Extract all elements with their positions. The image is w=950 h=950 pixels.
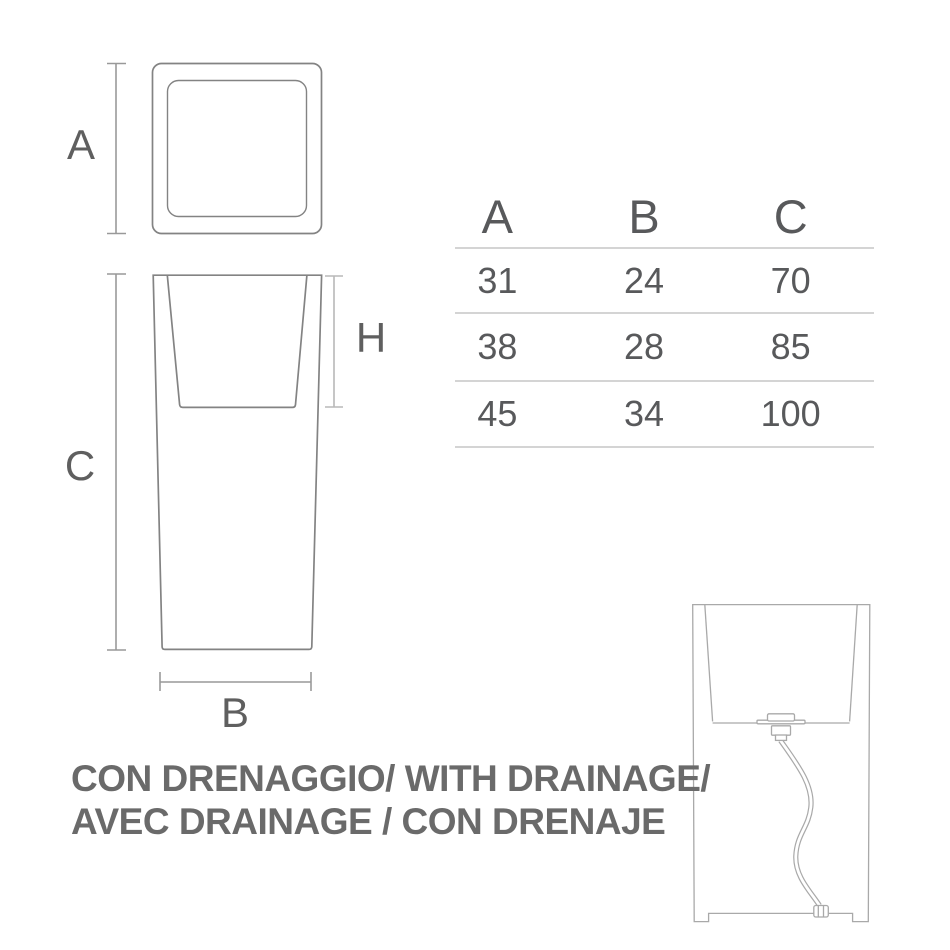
size-table: A B C 31 24 70 38 28 85 45 34 100 xyxy=(424,184,864,447)
dimension-label-c: C xyxy=(65,442,95,489)
top-view-drawing xyxy=(153,64,322,234)
drain-fitting-cap xyxy=(768,714,795,721)
drainage-caption: CON DRENAGGIO/ WITH DRAINAGE/ AVEC DRAIN… xyxy=(71,757,710,843)
drain-plug xyxy=(814,906,829,918)
dimension-line-h xyxy=(325,276,343,407)
size-table-cell: 28 xyxy=(571,326,718,368)
side-view-outline xyxy=(153,275,321,649)
table-rule-line xyxy=(455,380,874,382)
dimension-sheet: A C H B xyxy=(0,0,950,950)
size-table-row: 45 34 100 xyxy=(424,381,864,447)
drain-fitting-nut xyxy=(772,726,791,735)
size-table-cell: 34 xyxy=(571,393,718,435)
size-table-header-a: A xyxy=(424,189,571,244)
size-table-cell: 38 xyxy=(424,326,571,368)
dimension-label-a: A xyxy=(67,121,95,168)
size-table-header-c: C xyxy=(717,189,864,244)
size-table-cell: 45 xyxy=(424,393,571,435)
size-table-cell: 70 xyxy=(717,260,864,302)
dimension-line-a xyxy=(107,64,126,234)
drain-fitting xyxy=(757,714,805,741)
detail-outer-body xyxy=(693,605,870,922)
side-view-drawing xyxy=(153,275,321,649)
size-table-cell: 24 xyxy=(571,260,718,302)
side-view-inner-cavity xyxy=(167,275,307,407)
drainage-tube xyxy=(781,741,820,906)
top-view-outer-rim xyxy=(153,64,322,234)
drainage-caption-line2: AVEC DRAINAGE / CON DRENAJE xyxy=(71,800,710,843)
detail-inner-wall-left xyxy=(705,605,713,722)
size-table-cell: 31 xyxy=(424,260,571,302)
drainage-detail-drawing xyxy=(693,605,870,922)
size-table-row: 38 28 85 xyxy=(424,313,864,381)
table-rule-line xyxy=(455,446,874,448)
size-table-header-b: B xyxy=(571,189,718,244)
drain-fitting-connector xyxy=(776,735,787,740)
size-table-row: 31 24 70 xyxy=(424,248,864,313)
detail-inner-wall-right xyxy=(850,605,858,722)
dimension-label-b: B xyxy=(221,689,249,736)
dimension-label-h: H xyxy=(356,314,386,361)
drainage-caption-line1: CON DRENAGGIO/ WITH DRAINAGE/ xyxy=(71,757,710,800)
table-rule-line xyxy=(455,312,874,314)
dimension-line-c xyxy=(107,274,126,650)
size-table-cell: 85 xyxy=(717,326,864,368)
size-table-cell: 100 xyxy=(717,393,864,435)
table-rule-line xyxy=(455,247,874,249)
top-view-inner-rim xyxy=(168,81,307,217)
size-table-header-row: A B C xyxy=(424,184,864,248)
